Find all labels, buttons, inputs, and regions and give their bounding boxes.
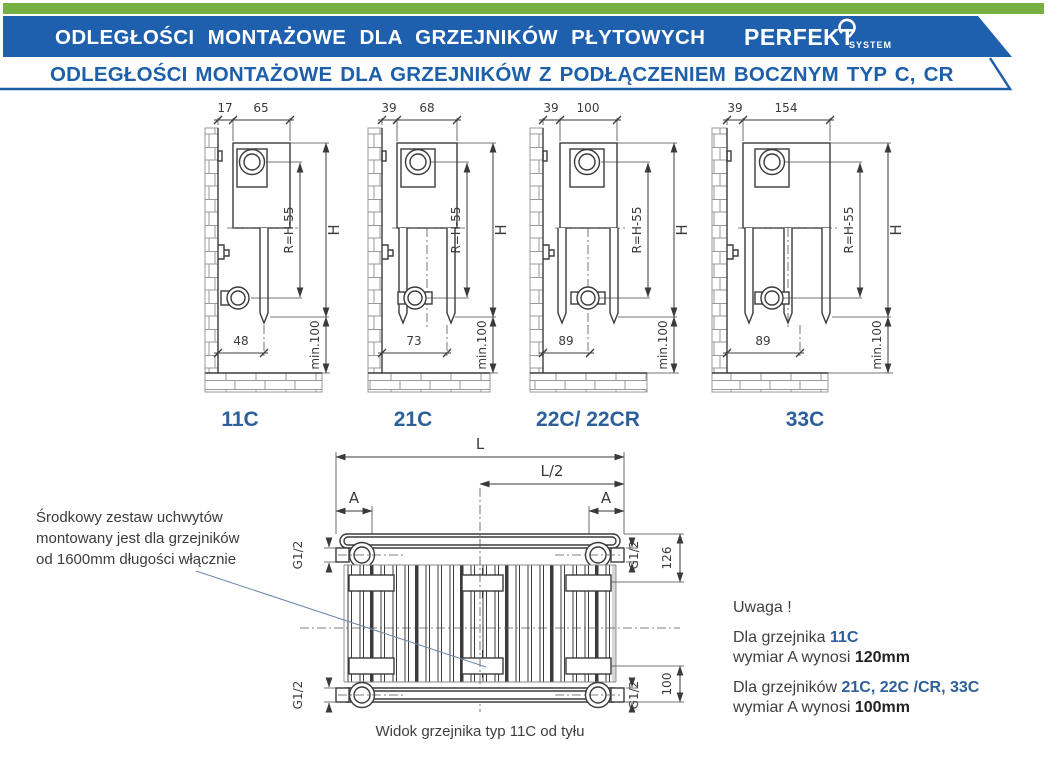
dim-bottom: 73	[406, 334, 421, 348]
dimensions-top: L L/2 A A	[336, 435, 624, 534]
dim-bottom: 48	[233, 334, 248, 348]
diagram-33c: 39 154 R=H-55 H min.100 89 33C	[695, 95, 910, 435]
wall-bracket-mid	[218, 245, 229, 259]
subtitle: ODLEGŁOŚCI MONTAŻOWE DLA GRZEJNIKÓW Z PO…	[50, 62, 954, 86]
note-block: Uwaga ! Dla grzejnika 11C wymiar A wynos…	[733, 598, 1003, 728]
dim-height: H	[492, 224, 510, 235]
note-value-120mm: 120mm	[855, 649, 910, 666]
dimensions: 39 68 R=H-55 H min.100 73	[378, 101, 510, 373]
panel-fin	[260, 228, 268, 323]
bottom-valve	[404, 287, 426, 309]
dim-gap: 39	[543, 101, 558, 115]
bracket-annotation: Środkowy zestaw uchwytów montowany jest …	[36, 507, 286, 570]
note-value-100mm: 100mm	[855, 699, 910, 716]
note-line: wymiar A wynosi 100mm	[733, 698, 1003, 718]
green-top-bar	[3, 3, 1044, 14]
annotation-line: montowany jest dla grzejników	[36, 528, 286, 549]
panel-fin	[822, 228, 830, 323]
wall-bracket-upper	[727, 151, 731, 161]
dim-min: min.100	[475, 320, 489, 369]
wall-bracket-upper	[382, 151, 386, 161]
note-type-11c: 11C	[830, 629, 858, 646]
thread-label-left-bottom: G1/2	[291, 681, 305, 710]
dim-height: H	[673, 224, 691, 235]
dim-a-left: A	[349, 489, 360, 507]
panel-fin	[558, 228, 566, 323]
floor	[712, 373, 828, 392]
wall-bracket-mid	[382, 245, 393, 259]
type-label-21c: 21C	[394, 408, 433, 431]
note-text: wymiar A wynosi	[733, 649, 855, 666]
bottom-valve	[577, 287, 599, 309]
dim-min: min.100	[870, 320, 884, 369]
panel-fin	[745, 228, 753, 323]
note-line: Dla grzejników 21C, 22C /CR, 33C	[733, 678, 1003, 698]
dim-half-length: L/2	[541, 462, 564, 480]
type-label-33c: 33C	[786, 408, 825, 431]
dim-min: min.100	[308, 320, 322, 369]
dim-100: 100	[660, 673, 674, 696]
dim-radius: R=H-55	[449, 206, 463, 253]
dim-bottom: 89	[755, 334, 770, 348]
brand-logo-text: PERFEKT	[744, 24, 855, 50]
floor	[530, 373, 647, 392]
wall-bracket-upper	[543, 151, 547, 161]
dim-gap: 17	[217, 101, 232, 115]
thread-label-right-bottom: G1/2	[627, 681, 641, 710]
dim-depth: 100	[577, 101, 600, 115]
note-text: Dla grzejnika	[733, 629, 830, 646]
back-view-diagram: L L/2 A A	[280, 432, 700, 747]
dim-depth: 68	[419, 101, 434, 115]
floor	[368, 373, 490, 392]
header-banner: ODLEGŁOŚCI MONTAŻOWE DLA GRZEJNIKÓW PŁYT…	[0, 0, 1053, 96]
diagram-11c: 17 65 R=H-55 H min.100 48 11C	[190, 95, 355, 435]
back-view-caption: Widok grzejnika typ 11C od tyłu	[376, 723, 585, 740]
dim-gap: 39	[727, 101, 742, 115]
panel-fin	[610, 228, 618, 323]
dim-height: H	[325, 224, 343, 235]
dim-depth: 154	[775, 101, 798, 115]
note-group-11c: Dla grzejnika 11C wymiar A wynosi 120mm	[733, 628, 1003, 668]
wall	[368, 128, 393, 373]
wall-bracket-mid	[727, 245, 738, 259]
dim-length: L	[476, 435, 485, 453]
note-types-other: 21C, 22C /CR, 33C	[841, 679, 979, 696]
wall-bracket-mid	[543, 245, 554, 259]
annotation-line: Środkowy zestaw uchwytów	[36, 507, 286, 528]
dim-gap: 39	[381, 101, 396, 115]
panel-fin	[399, 228, 407, 323]
radiator-section	[738, 143, 838, 327]
note-line: Dla grzejnika 11C	[733, 628, 1003, 648]
floor	[205, 373, 322, 392]
dim-radius: R=H-55	[842, 206, 856, 253]
radiator-back	[300, 488, 680, 712]
dim-126: 126	[660, 547, 674, 570]
wall	[205, 128, 229, 373]
thread-label-left-top: G1/2	[291, 541, 305, 570]
dim-bottom: 89	[558, 334, 573, 348]
dimensions: 17 65 R=H-55 H min.100 48	[214, 101, 343, 373]
note-heading: Uwaga !	[733, 598, 1003, 618]
diagram-22c-22cr: 39 100 R=H-55 H min.100 89 22C/ 22CR	[520, 95, 695, 435]
note-text: Dla grzejników	[733, 679, 841, 696]
wall	[712, 128, 738, 373]
note-line: wymiar A wynosi 120mm	[733, 648, 1003, 668]
technical-sheet-page: ODLEGŁOŚCI MONTAŻOWE DLA GRZEJNIKÓW PŁYT…	[0, 0, 1053, 769]
dim-a-right: A	[601, 489, 612, 507]
wall	[530, 128, 554, 373]
dim-radius: R=H-55	[630, 206, 644, 253]
brand-logo-suffix: SYSTEM	[849, 40, 892, 50]
annotation-line: od 1600mm długości włącznie	[36, 549, 286, 570]
diagram-21c: 39 68 R=H-55 H min.100 73 21C	[355, 95, 520, 435]
main-title: ODLEGŁOŚCI MONTAŻOWE DLA GRZEJNIKÓW PŁYT…	[55, 25, 705, 49]
type-label-22c-22cr: 22C/ 22CR	[536, 408, 640, 431]
dim-depth: 65	[253, 101, 268, 115]
type-label-11c: 11C	[221, 408, 258, 431]
thread-label-right-top: G1/2	[627, 541, 641, 570]
wall-bracket-upper	[218, 151, 222, 161]
note-group-others: Dla grzejników 21C, 22C /CR, 33C wymiar …	[733, 678, 1003, 718]
note-text: wymiar A wynosi	[733, 699, 855, 716]
dim-min: min.100	[656, 320, 670, 369]
dim-radius: R=H-55	[282, 206, 296, 253]
radiator-section	[555, 143, 625, 327]
dim-height: H	[887, 224, 905, 235]
bottom-valve	[761, 287, 783, 309]
